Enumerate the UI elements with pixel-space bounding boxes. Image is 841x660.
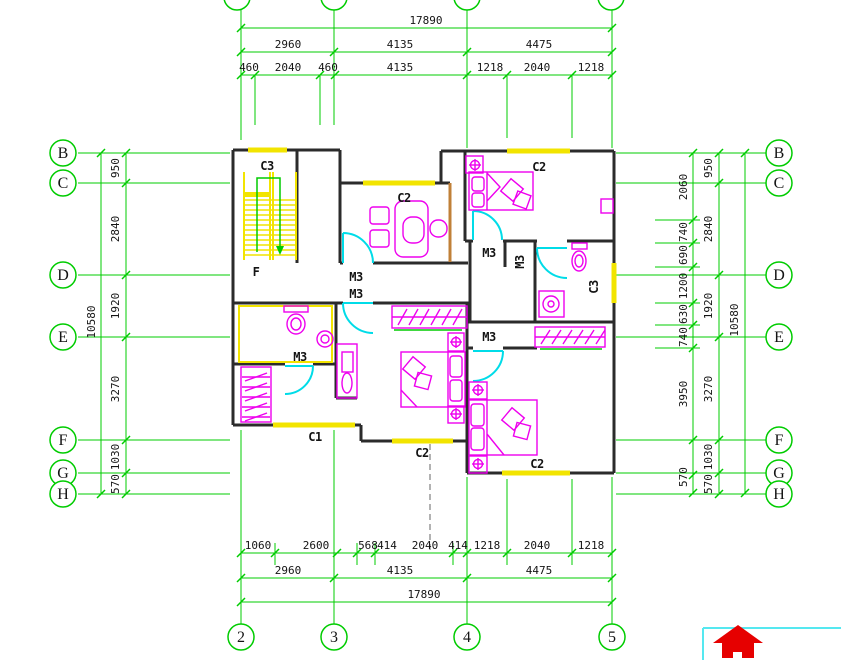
washer-drum-inner bbox=[548, 301, 554, 307]
dim-right-det-3: 690 bbox=[677, 245, 690, 265]
nightstand-tr-right bbox=[601, 199, 613, 213]
dimension-tick-marks bbox=[97, 24, 749, 606]
grid-bubble-right-B-label: B bbox=[774, 145, 785, 162]
quilt-br-1 bbox=[502, 408, 525, 431]
office-desk-chair bbox=[403, 217, 424, 243]
dim-right-chain-2: 2840 bbox=[702, 216, 715, 243]
dim-right-chain-4: 3270 bbox=[702, 376, 715, 403]
dim-right-chain-1: 950 bbox=[702, 158, 715, 178]
pillow-tr-1 bbox=[472, 177, 484, 191]
grid-bubble-left-C-label: C bbox=[58, 175, 69, 192]
door-label-m3-bedroom-br: M3 bbox=[482, 330, 496, 344]
dim-left-1: 950 bbox=[109, 158, 122, 178]
floor-plan-drawing: BCDEFGHBCDEFGH2345 178902960413544754602… bbox=[0, 0, 841, 660]
door-label-m3-bath2: M3 bbox=[513, 255, 527, 269]
door-hall bbox=[343, 303, 373, 333]
dim-left-3: 1920 bbox=[109, 293, 122, 320]
door-bath2 bbox=[537, 248, 567, 278]
dim-bot1-8: 2040 bbox=[524, 539, 551, 552]
dim-right-det-8: 570 bbox=[677, 467, 690, 487]
dim-top3-4: 4135 bbox=[387, 61, 414, 74]
grid-bubble-right-F-label: F bbox=[775, 432, 784, 449]
dim-right-det-1: 2060 bbox=[677, 174, 690, 201]
dim-bot1-3: 568 bbox=[358, 539, 378, 552]
window-label-c1: C1 bbox=[308, 430, 322, 444]
dim-bot2-2: 4135 bbox=[387, 564, 414, 577]
quilt-tr-2 bbox=[513, 191, 531, 209]
quilt-bc-2 bbox=[414, 372, 431, 389]
dim-top3-6: 2040 bbox=[524, 61, 551, 74]
office-chair-1 bbox=[370, 207, 389, 224]
bed-bc-details bbox=[401, 352, 448, 407]
dim-right-det-2: 740 bbox=[677, 222, 690, 242]
office-stool bbox=[430, 220, 447, 237]
dim-left-overall: 10580 bbox=[85, 305, 98, 338]
window-label-c3-stair: C3 bbox=[260, 159, 274, 173]
dim-bot1-1: 1060 bbox=[245, 539, 272, 552]
dim-bot1-4: 414 bbox=[377, 539, 397, 552]
door-bedroom-tr bbox=[473, 211, 502, 240]
grid-bubble-bottom-2-label: 2 bbox=[237, 629, 245, 646]
dim-left-4: 3270 bbox=[109, 376, 122, 403]
floor-plan-canvas: BCDEFGHBCDEFGH2345 178902960413544754602… bbox=[0, 0, 841, 660]
grid-bubble-bottom-5-label: 5 bbox=[608, 629, 616, 646]
dim-bot1-7: 1218 bbox=[474, 539, 501, 552]
grid-bubble-right-H-label: H bbox=[773, 486, 785, 503]
left-dimension-lines bbox=[78, 153, 230, 494]
door-bedroom-br bbox=[473, 351, 503, 381]
dim-top3-2: 2040 bbox=[275, 61, 302, 74]
grid-bubble-left-H-label: H bbox=[57, 486, 69, 503]
stair-direction-label: F bbox=[253, 265, 260, 279]
dim-right-overall: 10580 bbox=[728, 303, 741, 336]
toilet1-bowl-inner bbox=[291, 318, 301, 330]
pillow-bc-1 bbox=[450, 356, 462, 377]
dim-top3-3: 460 bbox=[318, 61, 338, 74]
house-logo-door bbox=[733, 652, 742, 658]
grid-bubble-top-5 bbox=[598, 0, 624, 10]
dim-right-det-5: 630 bbox=[677, 304, 690, 324]
grid-bubble-right-E-label: E bbox=[774, 329, 784, 346]
window-label-c2-bedroom-bc: C2 bbox=[415, 446, 429, 460]
quilt-br-2 bbox=[513, 422, 530, 439]
dim-bot-overall: 17890 bbox=[407, 588, 440, 601]
office-desk bbox=[395, 201, 428, 257]
washer-drum bbox=[543, 296, 559, 312]
door-label-m3-bath1: M3 bbox=[293, 350, 307, 364]
door-label-m3-bedroom-tr: M3 bbox=[482, 246, 496, 260]
dim-top-overall: 17890 bbox=[409, 14, 442, 27]
dim-right-det-7: 3950 bbox=[677, 381, 690, 408]
grid-bubble-right-D-label: D bbox=[773, 267, 785, 284]
grid-bubble-left-G-label: G bbox=[57, 465, 69, 482]
title-block-corner bbox=[703, 625, 841, 660]
grid-bubble-bottom-4-label: 4 bbox=[463, 629, 471, 646]
quilt-tr-1 bbox=[501, 179, 524, 202]
door-label-m3-hall-b: M3 bbox=[349, 287, 363, 301]
dim-top2-2: 4135 bbox=[387, 38, 414, 51]
staircase bbox=[244, 172, 296, 260]
grid-bubble-left-D-label: D bbox=[57, 267, 69, 284]
grid-bubble-left-F-label: F bbox=[59, 432, 68, 449]
dim-bot1-6: 414 bbox=[448, 539, 468, 552]
window-label-c2-office: C2 bbox=[397, 191, 411, 205]
grid-bubble-left-E-label: E bbox=[58, 329, 68, 346]
text-labels: 1789029604135447546020404604135121820401… bbox=[85, 14, 741, 601]
dresser-mirror bbox=[342, 373, 352, 393]
dim-top3-1: 460 bbox=[239, 61, 259, 74]
window-label-c2-bedroom-br: C2 bbox=[530, 457, 544, 471]
pillow-bc-2 bbox=[450, 380, 462, 401]
dim-right-chain-5: 1030 bbox=[702, 444, 715, 471]
door-label-m3-hall-a: M3 bbox=[349, 270, 363, 284]
toilet2-tank bbox=[572, 243, 587, 249]
window-label-c3-bath2: C3 bbox=[587, 280, 601, 294]
quilt-bc-1 bbox=[403, 357, 426, 380]
door-bath1 bbox=[285, 366, 313, 394]
dresser-inner bbox=[342, 352, 353, 372]
bed-tr-details bbox=[487, 172, 500, 210]
window-label-c2-bedroom-tr: C2 bbox=[532, 160, 546, 174]
dim-top3-5: 1218 bbox=[477, 61, 504, 74]
dim-bot1-5: 2040 bbox=[412, 539, 439, 552]
dim-left-6: 570 bbox=[109, 474, 122, 494]
top-dimension-lines bbox=[241, 6, 612, 148]
dimension-grid-lines bbox=[78, 6, 766, 624]
interior-walls bbox=[233, 151, 614, 441]
dim-right-chain-3: 1920 bbox=[702, 293, 715, 320]
sink1-inner bbox=[321, 335, 329, 343]
pillow-br-1 bbox=[471, 404, 484, 426]
dim-right-det-4: 1200 bbox=[677, 273, 690, 300]
grid-bubble-bottom-3-label: 3 bbox=[330, 629, 338, 646]
grid-bubble-left-B-label: B bbox=[58, 145, 69, 162]
stair-strings bbox=[244, 172, 296, 260]
dim-bot1-2: 2600 bbox=[303, 539, 330, 552]
pillow-br-2 bbox=[471, 428, 484, 450]
dim-bot2-1: 2960 bbox=[275, 564, 302, 577]
pillow-tr-2 bbox=[472, 193, 484, 207]
grid-bubble-right-G-label: G bbox=[773, 465, 785, 482]
dim-left-5: 1030 bbox=[109, 444, 122, 471]
toilet2-bowl-inner bbox=[575, 255, 583, 267]
grid-bubble-top-4 bbox=[454, 0, 480, 10]
door-office bbox=[343, 233, 373, 263]
toilet1-bowl bbox=[287, 314, 305, 334]
dim-bot2-3: 4475 bbox=[526, 564, 553, 577]
grid-bubble-right-C-label: C bbox=[774, 175, 785, 192]
office-chair-2 bbox=[370, 230, 389, 247]
toilet2-bowl bbox=[572, 251, 586, 271]
dim-right-chain-6: 570 bbox=[702, 474, 715, 494]
dim-top2-1: 2960 bbox=[275, 38, 302, 51]
dim-left-2: 2840 bbox=[109, 216, 122, 243]
grid-bubble-top-3 bbox=[321, 0, 347, 10]
dim-bot1-9: 1218 bbox=[578, 539, 605, 552]
dim-top2-3: 4475 bbox=[526, 38, 553, 51]
sink1 bbox=[317, 331, 333, 347]
dim-right-det-6: 740 bbox=[677, 327, 690, 347]
grid-bubble-top-2 bbox=[224, 0, 250, 10]
bed-br-details bbox=[487, 400, 504, 455]
dim-top3-7: 1218 bbox=[578, 61, 605, 74]
